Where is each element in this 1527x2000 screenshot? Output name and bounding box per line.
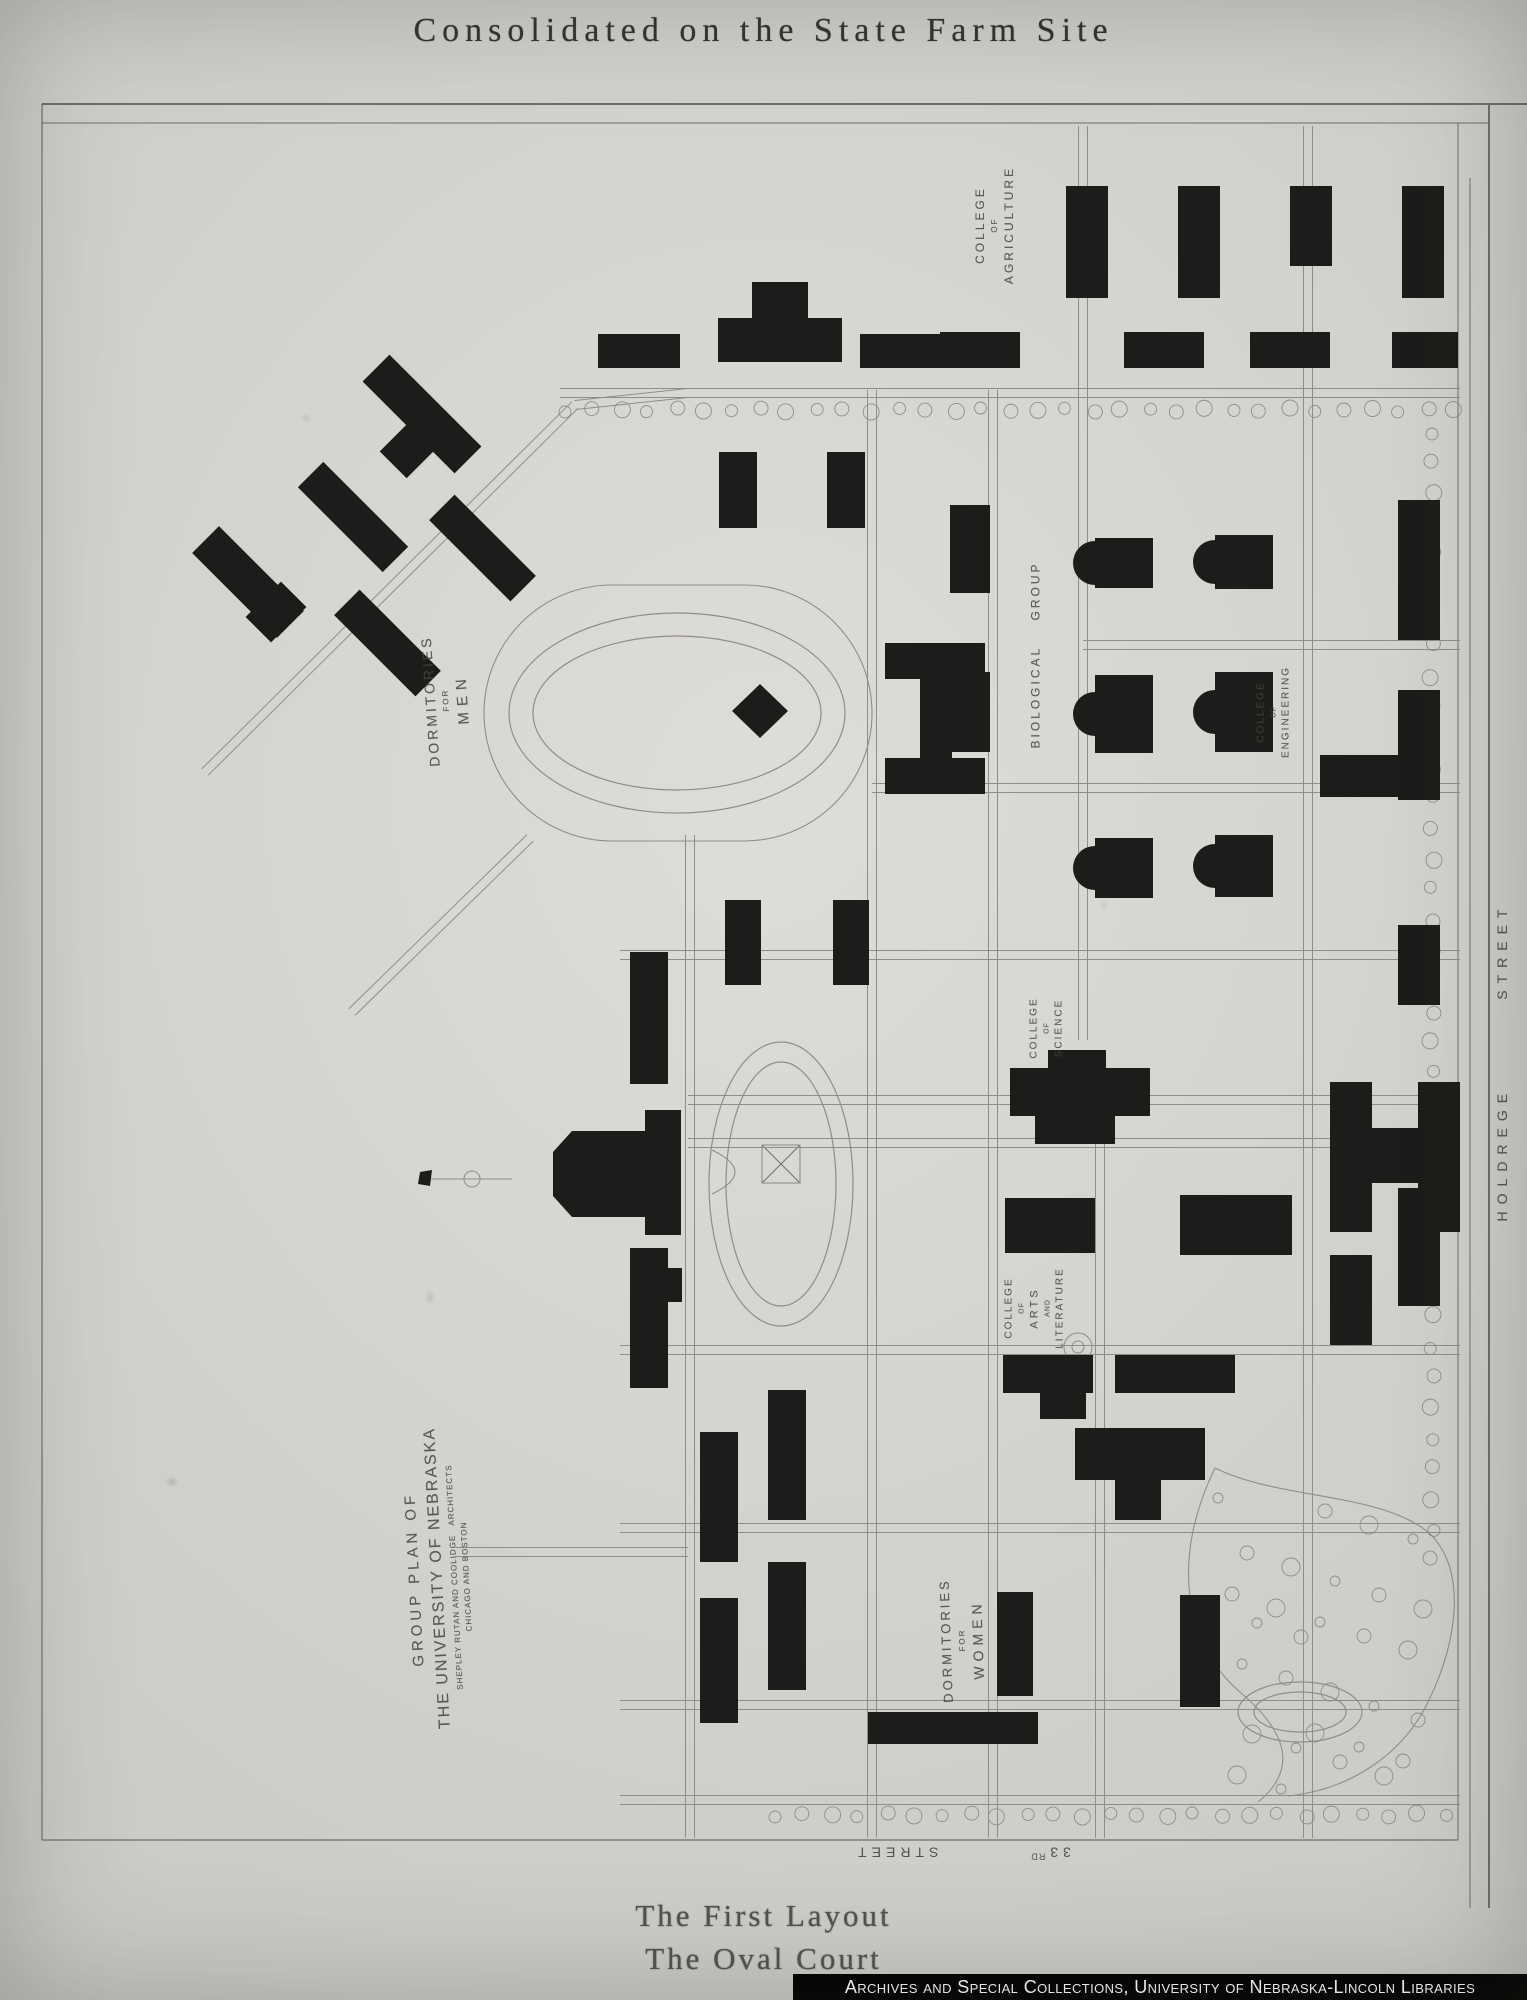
label-college-of-arts-and-literature: COLLEGEOFARTSANDLITERATURE [1002, 1267, 1067, 1349]
street-33rd-ordinal: RD [1030, 1851, 1045, 1861]
scanned-photo: Consolidated on the State Farm Site COLL… [0, 0, 1527, 2000]
caption-oval-court: The Oval Court [0, 1941, 1527, 1977]
label-dormitories-for-men: DORMITORIESFORMEN [416, 633, 479, 768]
caption-first-layout: The First Layout [0, 1898, 1527, 1934]
credit-bar: Archives and Special Collections, Univer… [793, 1974, 1527, 2000]
credit-text: Archives and Special Collections, Univer… [845, 1977, 1475, 1998]
label-college-of-engineering: COLLEGEOFENGINEERING [1254, 666, 1293, 758]
street-33rd-number: 33 [1045, 1845, 1071, 1861]
label-holdrege-street: HOLDREGE STREET [1492, 903, 1512, 1222]
label-group-plan-title-block: GROUP PLAN OFTHE UNIVERSITY OF NEBRASKAS… [396, 1425, 480, 1731]
map-labels-layer: COLLEGEOFAGRICULTUREDORMITORIESFORMENBIO… [0, 0, 1527, 2000]
street-label-33rd: 33RDSTREET [853, 1845, 1071, 1862]
street-33rd-word: STREET [853, 1845, 938, 1861]
label-dormitories-for-women: DORMITORIESFORWOMEN [935, 1577, 990, 1703]
label-college-of-science: COLLEGEOFSCIENCE [1027, 997, 1066, 1058]
label-college-of-agriculture: COLLEGEOFAGRICULTURE [972, 166, 1018, 284]
label-biological-group: BIOLOGICAL GROUP [1027, 561, 1044, 748]
